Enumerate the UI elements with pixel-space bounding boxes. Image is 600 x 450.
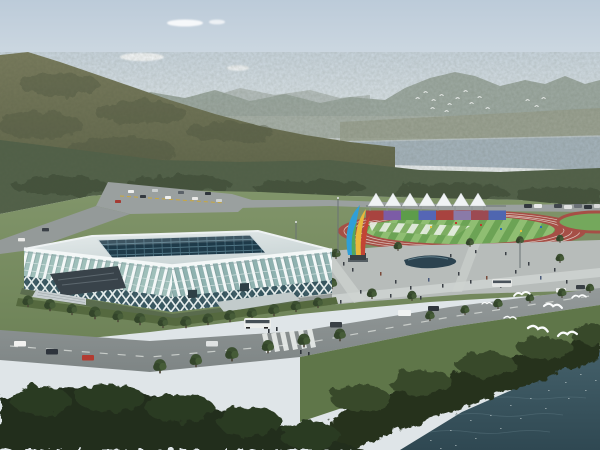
secondary-field: [558, 212, 600, 232]
bus-2: [492, 279, 512, 287]
rendering-image: Aerial architectural rendering of a rive…: [0, 0, 600, 450]
terrain-texture: [0, 52, 600, 212]
bus: [244, 318, 271, 329]
banner-wall: [366, 211, 506, 221]
scene-rendering: [0, 0, 600, 450]
